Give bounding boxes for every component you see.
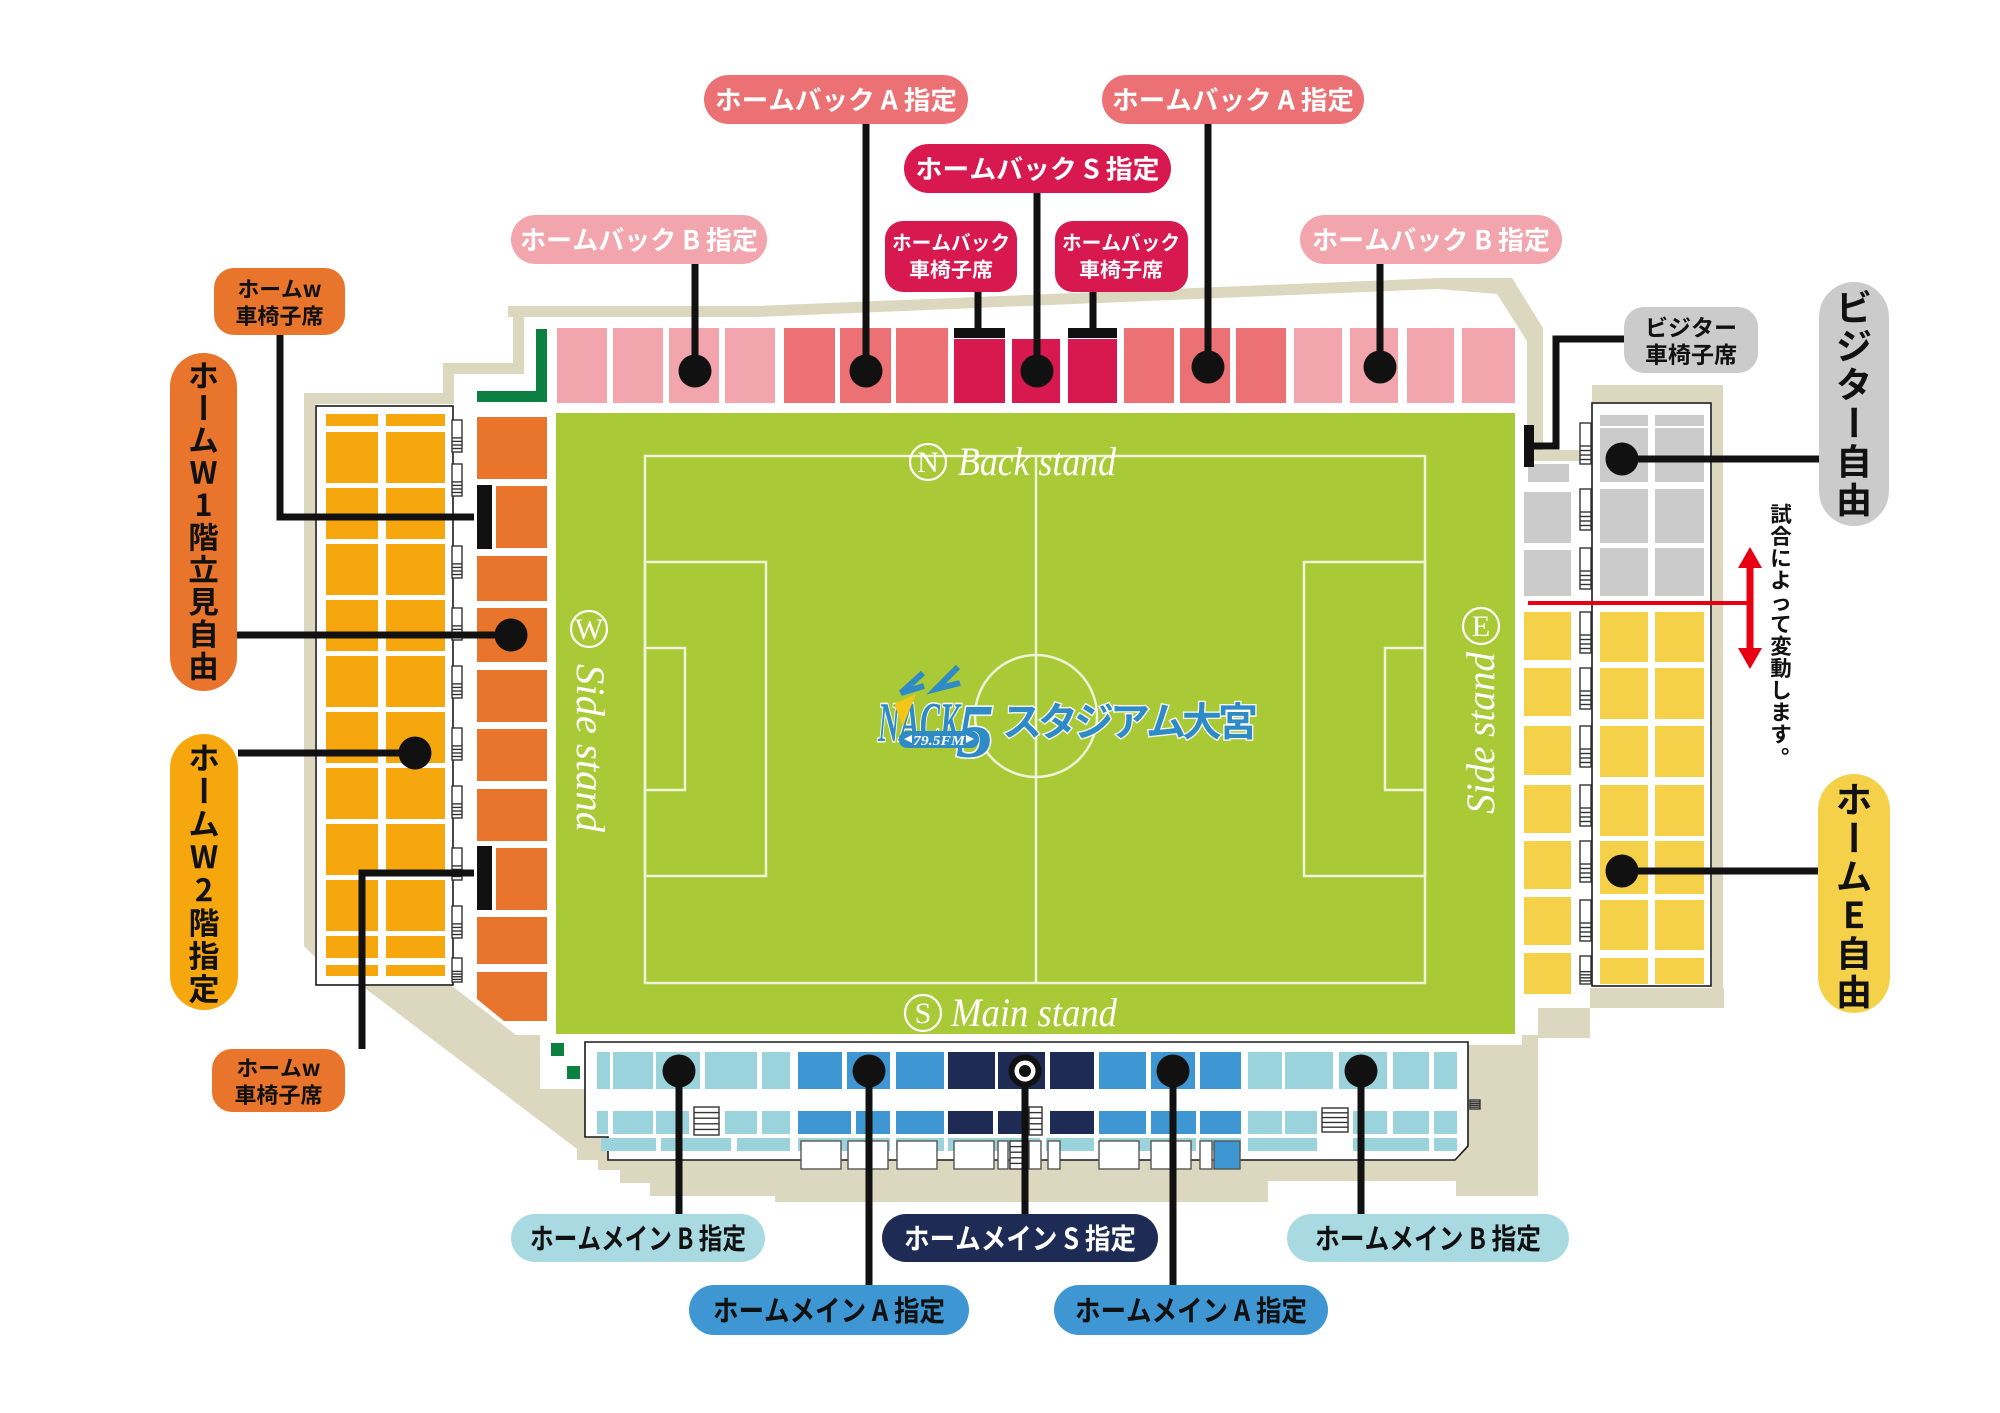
svg-text:N: N (917, 446, 939, 479)
svg-text:W: W (575, 613, 604, 646)
svg-text:Side stand: Side stand (568, 664, 613, 833)
svg-text:S: S (915, 997, 932, 1030)
svg-text:Back stand: Back stand (958, 439, 1117, 484)
svg-text:79.5FM: 79.5FM (913, 734, 966, 749)
svg-text:Side stand: Side stand (1458, 651, 1503, 814)
svg-text:E: E (1472, 610, 1490, 643)
svg-text:Main stand: Main stand (950, 990, 1118, 1035)
